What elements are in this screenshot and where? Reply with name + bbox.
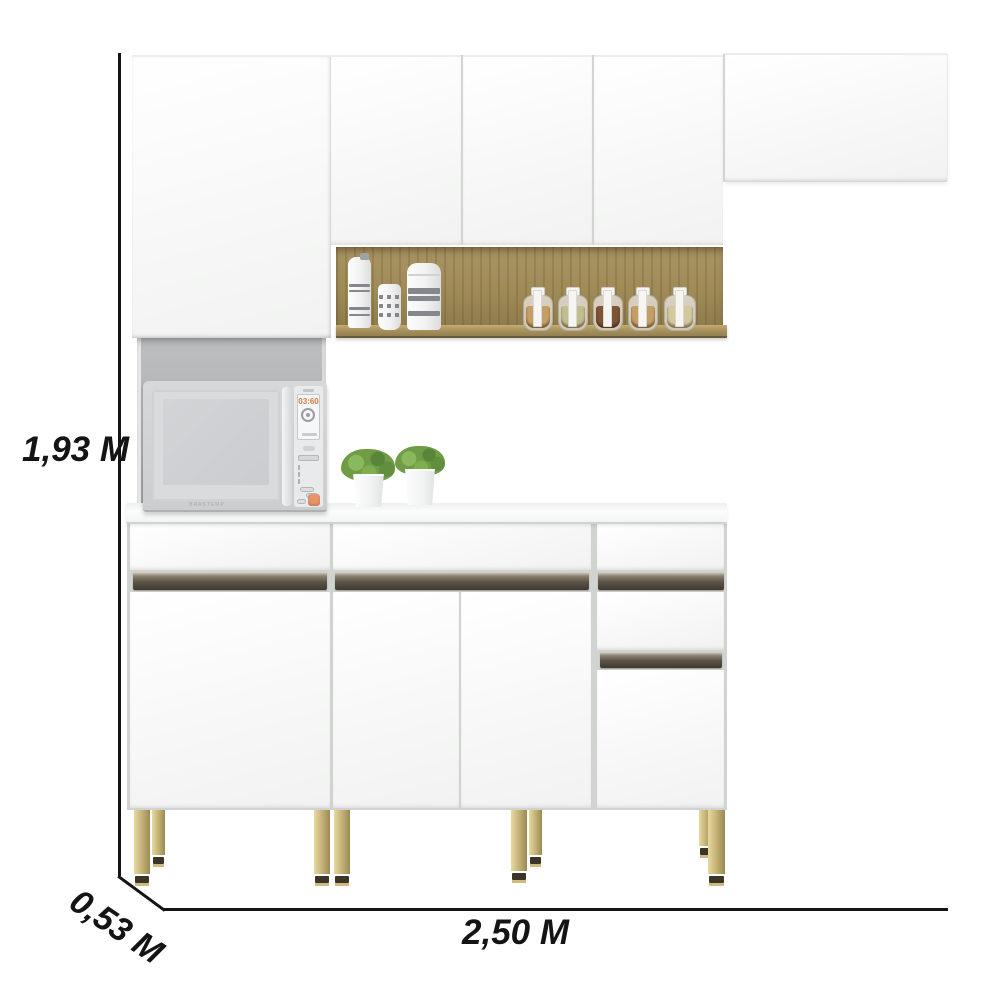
right-column-drawer-front bbox=[597, 592, 724, 650]
microwave-button bbox=[298, 479, 300, 484]
tower-cabinet-door bbox=[132, 55, 331, 338]
right-column-door bbox=[597, 670, 724, 808]
spice-jar-label bbox=[533, 290, 542, 327]
canister-stripe bbox=[379, 295, 400, 299]
microwave-button bbox=[297, 499, 306, 504]
microwave-sensor bbox=[303, 446, 315, 451]
leg-foot bbox=[512, 873, 526, 880]
spice-jar bbox=[558, 295, 588, 331]
upper-cabinet-door-3 bbox=[594, 55, 723, 245]
microwave-button bbox=[298, 472, 300, 477]
leg-foot bbox=[335, 876, 349, 883]
cabinet-leg bbox=[511, 810, 527, 871]
microwave-button bbox=[300, 487, 314, 492]
cabinet-leg bbox=[334, 810, 350, 874]
microwave-button bbox=[298, 465, 300, 470]
cabinet-leg bbox=[152, 810, 165, 855]
base-cabinet bbox=[127, 524, 727, 810]
microwave-display-bar bbox=[302, 433, 317, 436]
microwave-model-mark bbox=[303, 389, 314, 392]
base-drawer-front-1 bbox=[130, 524, 330, 570]
spice-jar bbox=[593, 295, 623, 331]
canister-stripe bbox=[349, 290, 370, 292]
cabinet-leg bbox=[529, 810, 542, 855]
microwave-button-row bbox=[298, 465, 320, 470]
canister-stripe bbox=[349, 284, 370, 287]
canister-wide bbox=[407, 263, 441, 330]
spice-jar bbox=[664, 295, 696, 331]
microwave-dial-dot bbox=[306, 413, 310, 417]
microwave-display-time: 03:60 bbox=[298, 397, 319, 406]
canister-stripe bbox=[349, 314, 370, 316]
canister-small bbox=[378, 284, 401, 330]
leg-foot bbox=[530, 857, 541, 864]
canister-stripe bbox=[408, 311, 440, 316]
leg-foot bbox=[135, 876, 149, 883]
canister-stripe bbox=[408, 288, 440, 294]
leg-foot bbox=[153, 857, 164, 864]
right-wall-cabinet-door bbox=[723, 53, 948, 182]
microwave-display: 03:60 bbox=[297, 394, 320, 440]
bronze-handle-strip-1 bbox=[133, 572, 327, 590]
spice-jar-label bbox=[603, 290, 612, 327]
upper-cabinet-door-1 bbox=[331, 55, 461, 245]
leg-foot bbox=[315, 876, 329, 883]
plant-pot bbox=[351, 474, 386, 507]
base-drawer-front-3 bbox=[597, 524, 724, 570]
spice-jar-label bbox=[638, 290, 647, 327]
plant-pot bbox=[403, 469, 437, 505]
cabinet-leg bbox=[708, 810, 725, 874]
microwave-window bbox=[163, 399, 269, 485]
base-cabinet-door-2 bbox=[333, 592, 459, 808]
spice-jar bbox=[628, 295, 658, 331]
upper-wall-cabinet bbox=[331, 55, 723, 245]
canister-tall bbox=[348, 257, 371, 328]
microwave-button-row bbox=[298, 472, 320, 477]
spice-jar-label bbox=[675, 290, 684, 327]
bronze-handle-strip-2 bbox=[335, 572, 589, 590]
canister-cap bbox=[360, 253, 369, 260]
width-dimension-label: 2,50 M bbox=[462, 913, 569, 953]
microwave-button-row bbox=[298, 479, 320, 484]
cabinet-leg bbox=[134, 810, 150, 874]
canister-stripe bbox=[349, 307, 370, 310]
cabinet-leg bbox=[314, 810, 330, 874]
right-column-handle-strip bbox=[600, 652, 722, 668]
spice-jar-label bbox=[568, 290, 577, 327]
base-cabinet-door-1 bbox=[130, 592, 330, 808]
leg-foot bbox=[709, 876, 724, 883]
canister-lid-line bbox=[408, 274, 440, 276]
microwave-brand-label: BRASTEMP bbox=[167, 502, 247, 508]
bronze-handle-strip-3 bbox=[598, 572, 724, 590]
microwave-control-panel: 03:60 bbox=[294, 386, 323, 507]
width-dimension-line bbox=[164, 908, 948, 911]
canister-stripe bbox=[408, 296, 440, 301]
product-image-kitchen-cabinet: 1,93 M 0,53 M 2,50 M bbox=[0, 0, 1000, 1000]
depth-dimension-label: 0,53 M bbox=[62, 882, 170, 972]
microwave-dial-icon bbox=[301, 408, 315, 422]
base-cabinet-door-3 bbox=[461, 592, 591, 808]
microwave-menu-button bbox=[298, 455, 319, 461]
microwave-door bbox=[152, 390, 280, 501]
microwave-start-button bbox=[308, 494, 320, 506]
canister-stripe bbox=[379, 313, 400, 317]
canister-stripe bbox=[379, 304, 400, 308]
upper-cabinet-door-2 bbox=[463, 55, 592, 245]
microwave: 03:60 bbox=[143, 381, 327, 512]
microwave-door-handle bbox=[282, 387, 292, 506]
spice-jar bbox=[523, 295, 553, 331]
height-dimension-label: 1,93 M bbox=[22, 430, 116, 470]
base-drawer-front-2 bbox=[333, 524, 591, 570]
